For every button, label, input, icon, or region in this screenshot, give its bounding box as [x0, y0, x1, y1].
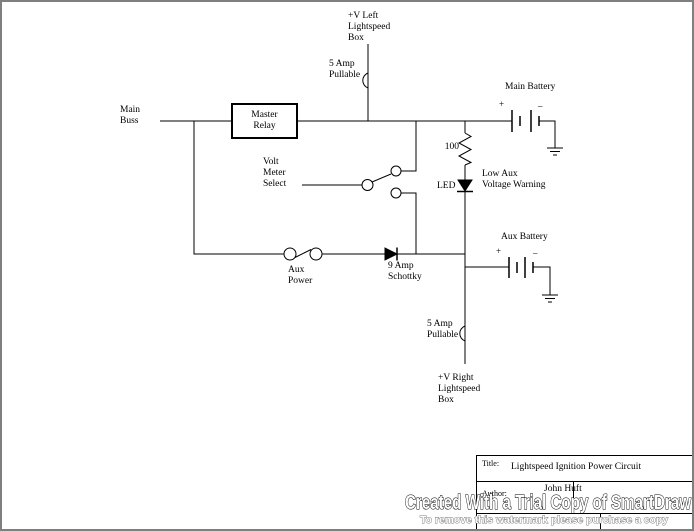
diagram-page: +V Left Lightspeed Box 5 Amp Pullable Ma…	[0, 0, 694, 531]
fuse-bottom-label: 5 Amp Pullable	[427, 319, 458, 341]
v-right-label: +V Right Lightspeed Box	[438, 373, 480, 406]
ground-main-symbol	[547, 148, 563, 155]
fuse-top-symbol	[363, 73, 368, 88]
schottky-diode-symbol	[385, 248, 397, 261]
v-left-label: +V Left Lightspeed Box	[348, 11, 390, 44]
author-value: John Huft	[544, 484, 582, 494]
volt-meter-switch	[362, 166, 401, 198]
title-block-divider-h1	[477, 481, 693, 482]
circuit-schematic	[2, 2, 694, 531]
title-value: Lightspeed Ignition Power Circuit	[511, 462, 641, 472]
title-block-divider-v2	[600, 513, 601, 529]
schottky-label: 9 Amp Schottky	[388, 261, 422, 283]
master-relay-label: Master Relay	[233, 110, 296, 132]
aux-power-label: Aux Power	[288, 265, 312, 287]
wire-main-batt-out	[539, 121, 555, 148]
watermark: Created With a Trial Copy of SmartDraw T…	[2, 2, 694, 531]
title-block: Title: Lightspeed Ignition Power Circuit…	[476, 455, 694, 530]
aux-power-switch	[284, 248, 322, 260]
main-battery-plus-sign: +	[499, 100, 504, 109]
low-aux-warning-label: Low Aux Voltage Warning	[482, 169, 546, 191]
wires	[160, 44, 555, 364]
main-battery-minus-sign: –	[538, 102, 543, 111]
wire-throw-up	[401, 121, 416, 171]
resistor-symbol	[459, 133, 471, 165]
resistor-value-label: 100	[439, 142, 459, 153]
main-battery-symbol	[512, 110, 539, 132]
aux-battery-symbol	[509, 257, 533, 278]
led-label: LED	[437, 181, 455, 192]
title-block-divider-h2	[477, 513, 693, 514]
author-label: Author:	[482, 489, 507, 498]
volt-meter-select-label: Volt Meter Select	[263, 157, 286, 190]
main-buss-label: Main Buss	[120, 105, 140, 127]
wire-aux-batt-out	[533, 267, 550, 295]
aux-battery-plus-sign: +	[496, 247, 501, 256]
ground-aux-symbol	[542, 295, 558, 302]
wire-throw-down	[401, 193, 416, 254]
aux-battery-label: Aux Battery	[501, 232, 548, 243]
fuse-top-label: 5 Amp Pullable	[329, 59, 360, 81]
title-label: Title:	[482, 459, 499, 468]
fuse-bottom-symbol	[460, 326, 465, 341]
main-battery-label: Main Battery	[505, 82, 555, 93]
aux-battery-minus-sign: –	[533, 249, 538, 258]
led-symbol	[457, 180, 473, 192]
